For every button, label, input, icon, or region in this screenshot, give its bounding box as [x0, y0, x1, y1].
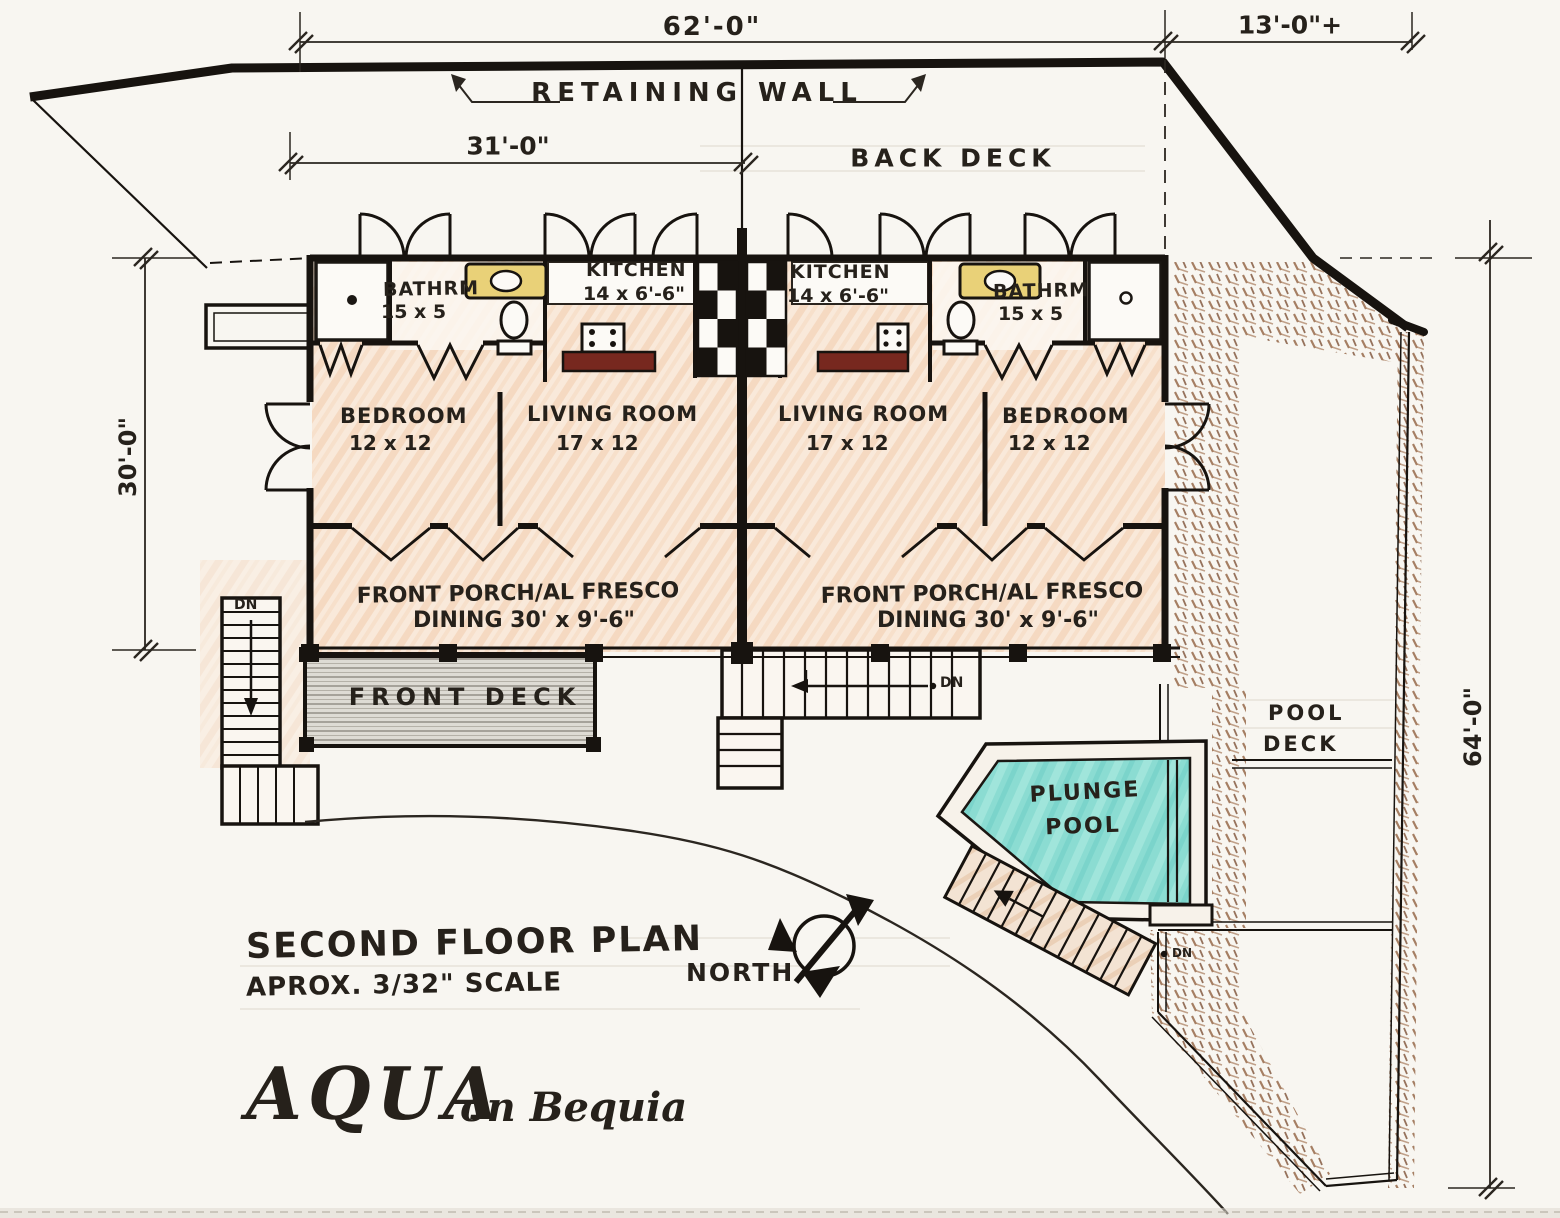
- pool-stair-dn-label: DN: [1172, 947, 1192, 959]
- back-deck-label: BACK DECK: [850, 146, 1055, 171]
- kitchen-left-label: KITCHEN: [586, 261, 686, 280]
- bedroom-right-size: 12 x 12: [1008, 433, 1091, 453]
- counter-left: [563, 352, 655, 371]
- middle-stair: [718, 650, 980, 788]
- north-label: NORTH: [686, 960, 794, 985]
- dim-top-right-label: 13'-0"+: [1238, 13, 1342, 38]
- retaining-wall-label: RETAINING WALL: [531, 80, 863, 106]
- bathroom-left-label: BATHRM: [383, 279, 479, 300]
- kitchen-left-size: 14 x 6'-6": [583, 285, 685, 304]
- bedroom-left-label: BEDROOM: [340, 406, 468, 427]
- floor-plan-page: 62'-0" 13'-0"+ RETAINING WALL 31'-0" BAC…: [0, 0, 1560, 1218]
- left-ledge: [206, 305, 310, 348]
- plunge-pool-label-line2: POOL: [1045, 815, 1121, 840]
- bathroom-right-size: 15 x 5: [998, 305, 1063, 324]
- dim-top-overall-label: 62'-0": [663, 14, 762, 40]
- toilet-left-icon: [498, 302, 531, 354]
- porch-right-line2: DINING 30' x 9'-6": [877, 610, 1099, 632]
- shower-head-icon: [347, 295, 357, 305]
- porch-left-line2: DINING 30' x 9'-6": [413, 610, 635, 632]
- front-deck-label: FRONT DECK: [349, 685, 582, 709]
- living-right-size: 17 x 12: [806, 433, 889, 453]
- living-left-size: 17 x 12: [556, 433, 639, 453]
- living-left-label: LIVING ROOM: [527, 404, 698, 425]
- bathroom-left-size: 15 x 5: [381, 303, 446, 322]
- pool-deck-label-line2: DECK: [1263, 734, 1338, 755]
- shower-right: [1089, 262, 1161, 340]
- toilet-right-icon: [944, 302, 977, 354]
- shower-left: [316, 262, 388, 340]
- logo-tagline: on Bequia: [460, 1088, 687, 1128]
- dim-upper-partial-label: 31'-0": [466, 134, 549, 159]
- living-right-label: LIVING ROOM: [778, 404, 949, 425]
- porch-right-line1: FRONT PORCH/AL FRESCO: [821, 580, 1144, 608]
- dim-right-side-label: 64'-0": [1461, 687, 1485, 767]
- counter-right: [818, 352, 908, 371]
- plan-title: SECOND FLOOR PLAN: [246, 922, 704, 965]
- kitchen-right-size: 14 x 6'-6": [787, 287, 889, 306]
- bedroom-right-label: BEDROOM: [1002, 406, 1130, 427]
- bathroom-right-label: BATHRM: [993, 281, 1089, 302]
- dim-left-side-label: 30'-0": [116, 417, 140, 497]
- plan-scale-note: APROX. 3/32" SCALE: [246, 969, 562, 1001]
- middle-stair-dn-label: DN: [940, 676, 963, 690]
- scan-edge: [0, 1208, 1560, 1218]
- porch-left-line1: FRONT PORCH/AL FRESCO: [357, 580, 680, 608]
- pool-deck-label-line1: POOL: [1268, 703, 1344, 724]
- plunge-pool-label-line1: PLUNGE: [1029, 779, 1141, 807]
- kitchen-right-label: KITCHEN: [790, 263, 890, 282]
- left-stair-dn-label: DN: [234, 598, 257, 612]
- bedroom-left-size: 12 x 12: [349, 433, 432, 453]
